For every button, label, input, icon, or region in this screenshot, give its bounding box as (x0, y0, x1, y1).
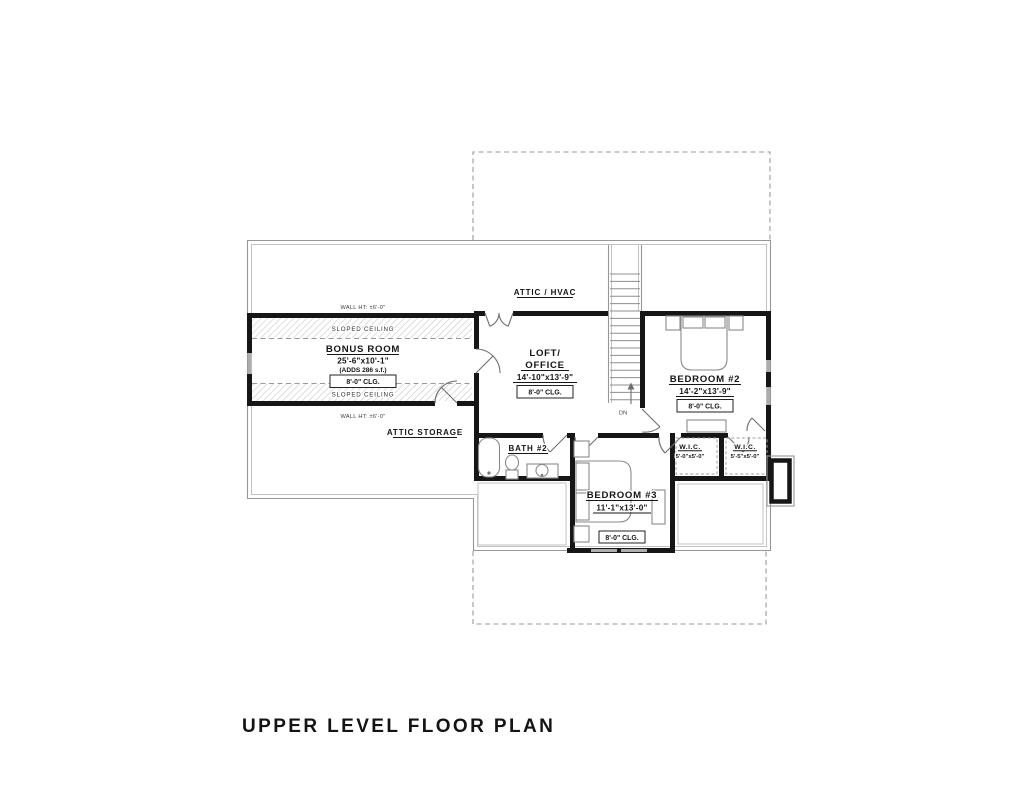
toilet-bowl (506, 455, 519, 470)
bench (687, 420, 726, 432)
bedroom2-name: BEDROOM #2 (670, 374, 740, 385)
attic-hvac-label: ATTIC / HVAC (514, 288, 577, 297)
sloped-ceiling-label-bottom: SLOPED CEILING (332, 392, 395, 399)
bedroom2-ceiling: 8'-0" CLG. (688, 404, 721, 411)
loft-ceiling: 8'-0" CLG. (528, 390, 561, 397)
bathtub (479, 438, 500, 477)
floor-plan-drawing: WALL HT: ±6'-0" SLOPED CEILING BONUS ROO… (0, 0, 1024, 791)
window-bedroom3-2 (621, 549, 647, 552)
bedroom3-ceiling: 8'-0" CLG. (605, 535, 638, 542)
tub-drain (487, 471, 490, 474)
bath2-name: BATH #2 (508, 444, 547, 453)
nightstand (574, 441, 589, 457)
wic1-dims: 5'-0"x5'-0" (676, 454, 705, 460)
bedroom2-dims: 14'-2"x13'-9" (679, 387, 731, 396)
bonus-room-note: (ADDS 286 s.f.) (339, 367, 386, 374)
chimney (767, 456, 794, 506)
wic2-dims: 5'-5"x5'-0" (731, 454, 760, 460)
window-bedroom2-right-2 (767, 387, 770, 405)
stairs-down-label: DN (619, 411, 628, 417)
wic1-name: W.I.C. (679, 444, 701, 451)
wic2-name: W.I.C. (734, 444, 756, 451)
bonus-room-ceiling: 8'-0" CLG. (346, 379, 379, 386)
page-title: UPPER LEVEL FLOOR PLAN (242, 716, 555, 737)
nightstand (666, 316, 680, 330)
window-bonus-left (248, 353, 251, 374)
nightstand (574, 526, 589, 542)
bonus-room-dims: 25'-6"x10'-1" (337, 357, 389, 366)
bonus-room-name: BONUS ROOM (326, 344, 400, 355)
pillow (576, 463, 589, 490)
loft-name-line1: LOFT/ (529, 348, 560, 359)
pillow (683, 317, 703, 328)
sloped-ceiling-label-top: SLOPED CEILING (332, 326, 395, 333)
window-bedroom2-right-1 (767, 360, 770, 372)
pillow (705, 317, 725, 328)
nightstand (729, 316, 743, 330)
loft-dims: 14'-10"x13'-9" (517, 373, 573, 382)
toilet-tank (506, 470, 518, 479)
sink-drain (541, 474, 544, 477)
attic-storage-label: ATTIC STORAGE (387, 428, 463, 437)
page-background (0, 0, 1024, 791)
bedroom3-name: BEDROOM #3 (587, 490, 657, 501)
wall-height-label-bottom: WALL HT: ±6'-0" (340, 414, 385, 420)
loft-name-line2: OFFICE (525, 360, 564, 371)
window-bedroom3-1 (591, 549, 617, 552)
wall-height-label-top: WALL HT: ±6'-0" (340, 305, 385, 311)
bedroom3-dims: 11'-1"x13'-0" (596, 504, 647, 513)
